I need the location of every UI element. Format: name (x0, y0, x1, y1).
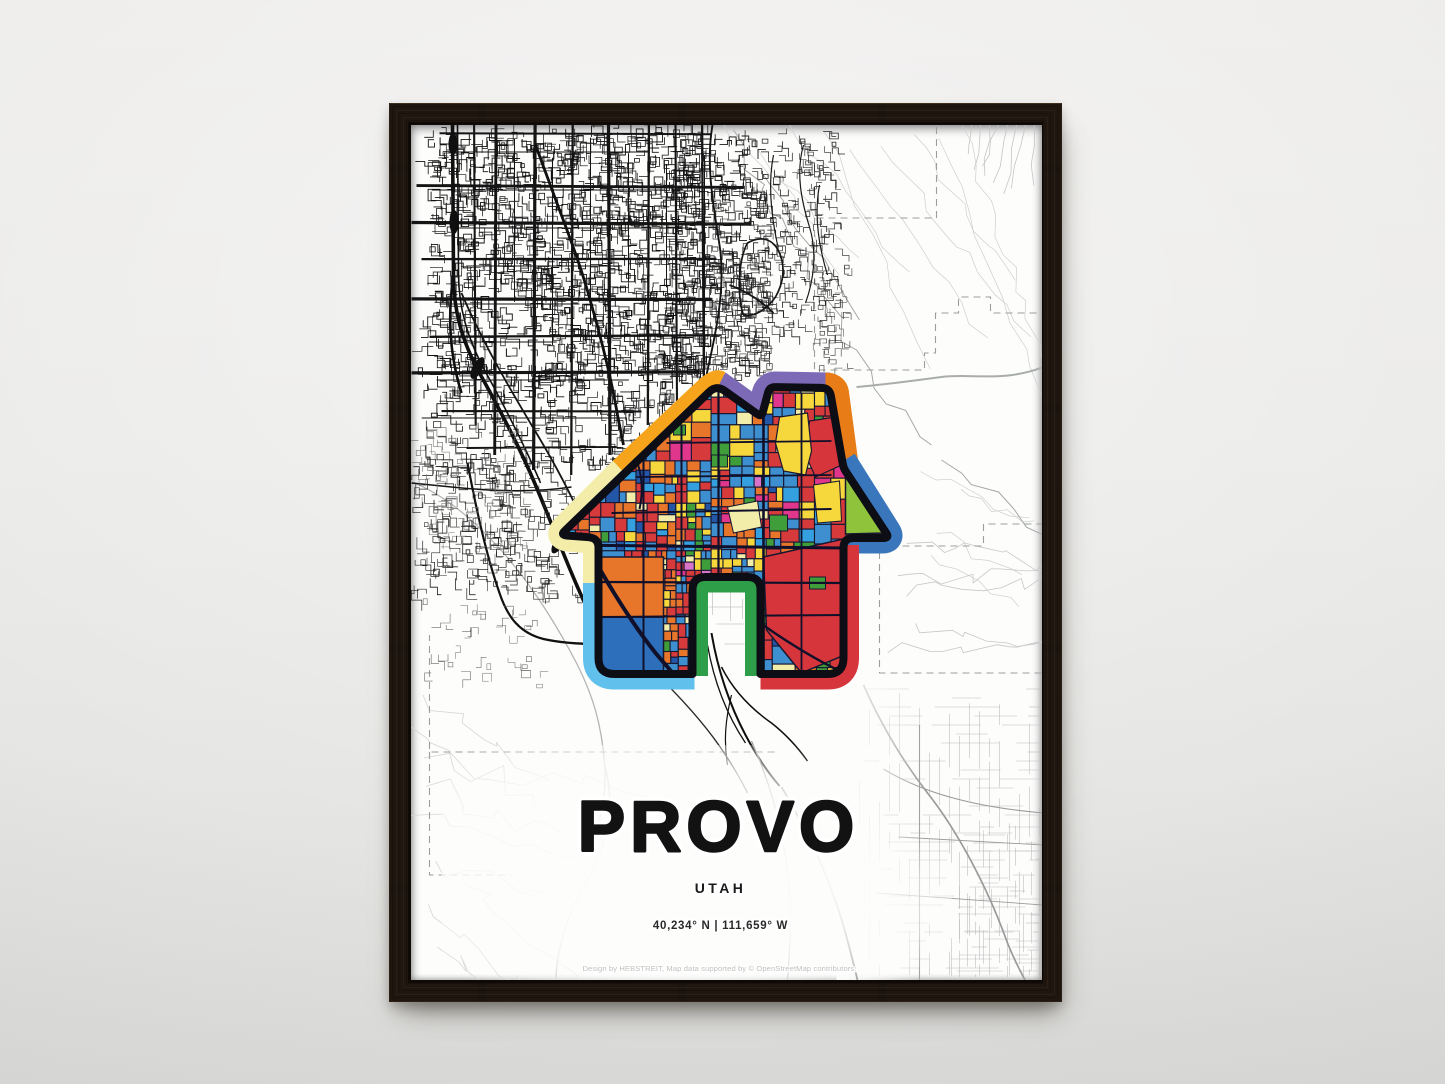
svg-text:Design by HEBSTREIT, Map data: Design by HEBSTREIT, Map data supported … (582, 964, 856, 973)
svg-text:PROVO: PROVO (578, 788, 859, 867)
svg-text:UTAH: UTAH (695, 880, 746, 896)
svg-text:40,234° N | 111,659° W: 40,234° N | 111,659° W (653, 920, 788, 932)
